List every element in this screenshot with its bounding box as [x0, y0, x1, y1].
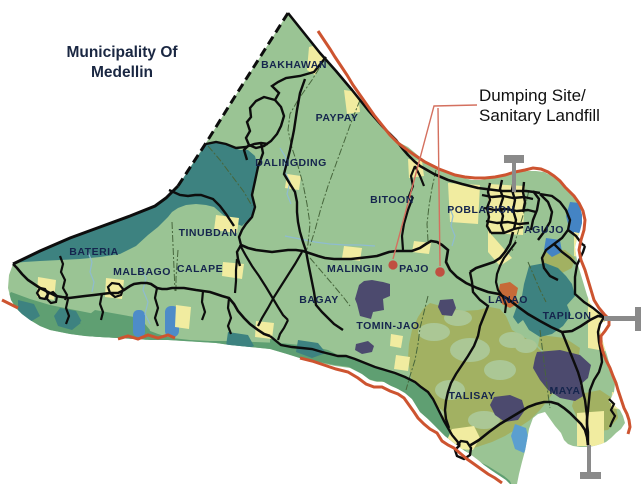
- svg-text:TINUBDAN: TINUBDAN: [179, 227, 238, 239]
- svg-text:BAGAY: BAGAY: [299, 294, 338, 306]
- svg-text:POBLACION: POBLACION: [447, 204, 515, 216]
- svg-text:PAYPAY: PAYPAY: [316, 112, 359, 124]
- svg-text:AGUJO: AGUJO: [524, 224, 564, 236]
- svg-text:Dumping Site/: Dumping Site/: [479, 86, 586, 105]
- svg-text:BITOON: BITOON: [370, 194, 414, 206]
- svg-text:MAYA: MAYA: [550, 385, 581, 397]
- svg-text:CALAPE: CALAPE: [177, 263, 223, 275]
- svg-text:TALISAY: TALISAY: [449, 390, 496, 402]
- svg-text:MALINGIN: MALINGIN: [327, 263, 383, 275]
- svg-text:Medellin: Medellin: [91, 64, 153, 81]
- svg-text:DALINGDING: DALINGDING: [255, 157, 327, 169]
- svg-text:Municipality Of: Municipality Of: [66, 44, 178, 61]
- svg-text:TAPILON: TAPILON: [543, 310, 592, 322]
- svg-text:TOMIN-JAO: TOMIN-JAO: [356, 320, 419, 332]
- svg-text:Sanitary Landfill: Sanitary Landfill: [479, 106, 600, 125]
- svg-text:BAKHAWAN: BAKHAWAN: [261, 59, 327, 71]
- svg-text:MALBAGO: MALBAGO: [113, 266, 171, 278]
- svg-text:PAJO: PAJO: [399, 263, 429, 275]
- svg-text:BATERIA: BATERIA: [69, 246, 118, 258]
- svg-text:LANAO: LANAO: [488, 294, 528, 306]
